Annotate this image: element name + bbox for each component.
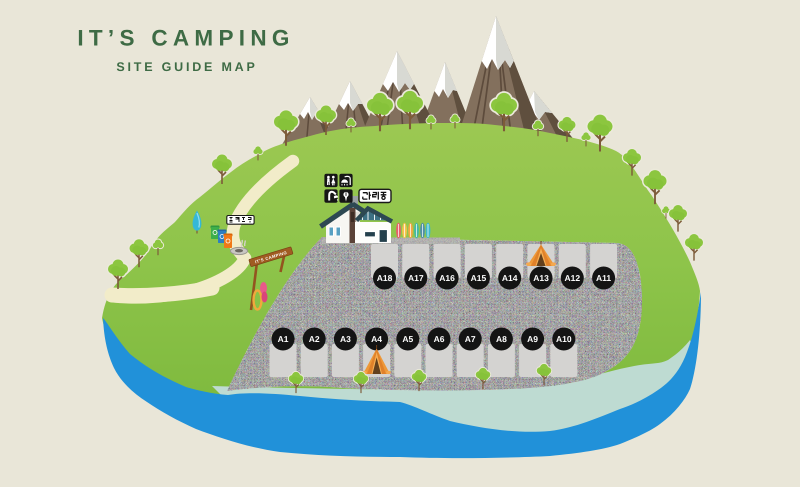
svg-text:A17: A17 xyxy=(408,273,424,283)
svg-text:A11: A11 xyxy=(596,273,611,283)
svg-text:A5: A5 xyxy=(402,334,413,344)
svg-text:A1: A1 xyxy=(278,334,289,344)
svg-text:A3: A3 xyxy=(340,334,351,344)
svg-text:A9: A9 xyxy=(527,334,538,344)
svg-text:A18: A18 xyxy=(377,273,393,283)
svg-text:A2: A2 xyxy=(309,334,320,344)
svg-text:A16: A16 xyxy=(439,273,455,283)
svg-text:A10: A10 xyxy=(556,334,572,344)
svg-text:A7: A7 xyxy=(465,334,476,344)
svg-text:A12: A12 xyxy=(565,273,581,283)
svg-text:A14: A14 xyxy=(502,273,518,283)
svg-text:SITE GUIDE MAP: SITE GUIDE MAP xyxy=(116,60,257,74)
svg-text:A6: A6 xyxy=(434,334,445,344)
svg-text:A4: A4 xyxy=(371,334,382,344)
svg-text:IT’S CAMPING: IT’S CAMPING xyxy=(77,26,294,51)
svg-text:A8: A8 xyxy=(496,334,507,344)
svg-text:A15: A15 xyxy=(471,273,487,283)
svg-text:A13: A13 xyxy=(533,273,549,283)
